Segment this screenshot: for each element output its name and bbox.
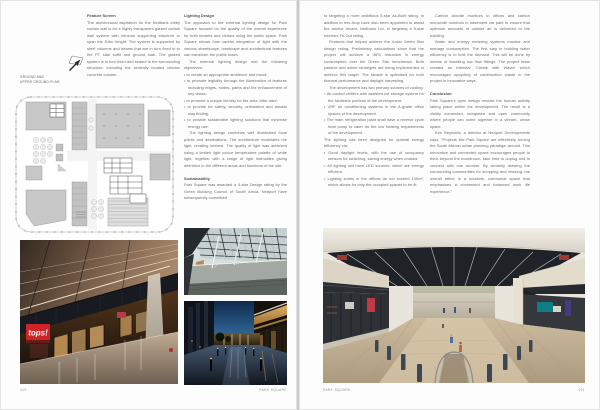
paragraph: Water and energy metering systems monito… <box>430 39 530 85</box>
lighting-objective: to promote legibility through the illumi… <box>184 78 287 98</box>
lighting-paragraph: The approach to the external lighting de… <box>184 20 287 59</box>
lighting-item: All lighting will have LED sources, whic… <box>324 163 424 176</box>
photo-exterior-walkway-dusk <box>184 301 287 385</box>
lighting-intro: The lighting has been designed for optim… <box>324 137 424 150</box>
lighting-paragraph: The lighting design combines well illumi… <box>184 130 287 169</box>
paragraph: to targeting a more ambitious 5-star As-… <box>324 13 424 39</box>
page-number: 010 <box>20 388 27 392</box>
paragraph: Park Square's open design reveals the hu… <box>430 98 530 131</box>
lighting-objective: to provide for safety, security, orienta… <box>184 104 287 117</box>
lighting-objectives-intro: The external lighting design met the fol… <box>184 59 287 72</box>
tops-sign-text: tops! <box>28 329 48 338</box>
cooling-item: Air-cooled chillers with assisted ice st… <box>324 91 424 104</box>
paragraph: Carbon dioxide monitors in offices and c… <box>430 13 530 39</box>
lighting-objective: to provide sustainable lighting solution… <box>184 117 287 130</box>
spread-gutter <box>296 0 300 410</box>
north-arrow-icon <box>66 55 86 72</box>
photo-atrium-skylight <box>184 228 287 295</box>
left-page: GROUND AND UPPER GROUND PLAN <box>0 0 297 410</box>
ground-floor-plan-drawing <box>12 94 178 236</box>
plan-caption: GROUND AND UPPER GROUND PLAN <box>20 75 84 85</box>
lighting-design-column: Lighting Design The approach to the exte… <box>184 13 287 202</box>
quote-paragraph: Ken Reynolds, a director at Nedport Deve… <box>430 130 530 195</box>
right-column-1: to targeting a more ambitious 5-star As-… <box>324 13 424 189</box>
feature-screen-body: The architectural aspiration for the Ned… <box>87 20 180 79</box>
right-page: to targeting a more ambitious 5-star As-… <box>299 0 600 410</box>
magazine-spread: GROUND AND UPPER GROUND PLAN <box>0 0 600 410</box>
cooling-item: The main refrigeration plant shall have … <box>324 117 424 137</box>
right-column-2: Carbon dioxide monitors in offices and c… <box>430 13 530 195</box>
sustainability-body: Park Square was awarded a 4-star Design … <box>184 182 287 202</box>
lighting-item: Lighting zones in the offices do not exc… <box>324 176 424 189</box>
photo-interior-promenade-dusk: tops! <box>20 240 178 384</box>
running-title: PARK SQUARE <box>323 388 351 392</box>
cooling-item: VRF air conditioning systems in the A-gr… <box>324 104 424 117</box>
page-number: 011 <box>579 388 585 392</box>
left-page-footer: 010 PARK SQUARE <box>20 388 287 392</box>
feature-screen-column: Feature Screen The architectural aspirat… <box>87 13 180 78</box>
lighting-item: Good daylight levels, with the use of oc… <box>324 150 424 163</box>
right-page-footer: PARK SQUARE 011 <box>323 388 585 392</box>
paragraph: Features that helped achieve the 4-star … <box>324 39 424 85</box>
running-title: PARK SQUARE <box>259 388 287 392</box>
photo-galleria-daytime <box>323 228 585 383</box>
